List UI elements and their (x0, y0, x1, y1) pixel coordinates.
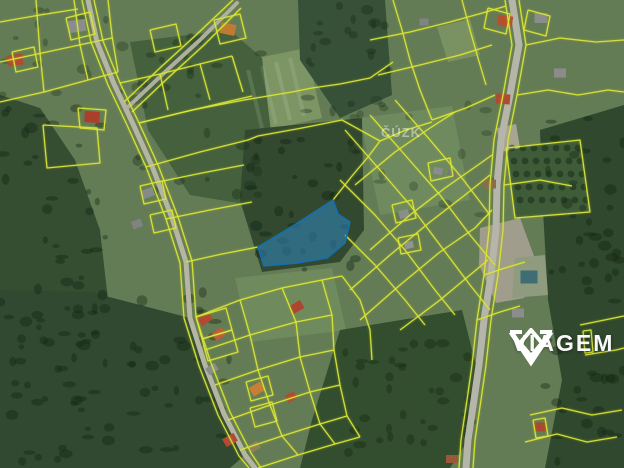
building-roof (512, 309, 524, 318)
building-roof (446, 455, 458, 463)
satellite-map[interactable] (0, 0, 624, 468)
building-roof (497, 15, 513, 28)
building-roof (420, 19, 429, 26)
building-roof (534, 423, 546, 432)
map-viewport[interactable]: ČÚZK VIAGEM (0, 0, 624, 468)
building-roof (521, 271, 538, 284)
building-roof (554, 69, 566, 78)
building-roof (84, 111, 100, 123)
